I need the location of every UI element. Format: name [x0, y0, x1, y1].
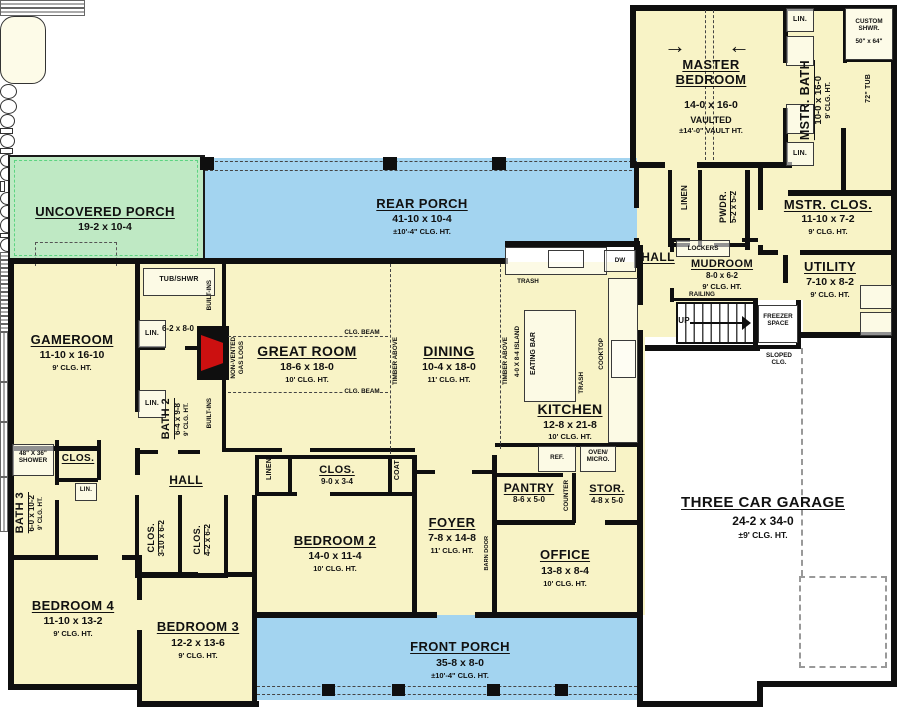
- room-clg: 9' CLG. HT.: [37, 497, 44, 530]
- timber-above-line: [500, 264, 501, 449]
- wall: [252, 495, 257, 615]
- wall: [222, 448, 282, 452]
- label-custom-shwr: CUSTOM SHWR.: [848, 18, 890, 32]
- window: [0, 422, 8, 477]
- ceiling-beam-line: [228, 336, 388, 337]
- label-line: NON-VENTED: [230, 337, 237, 379]
- label-oven-micro: OVEN/ MICRO.: [581, 449, 615, 463]
- room-dim: 6-0 x 10-2: [27, 495, 36, 531]
- room-label-bath3: BATH 3 6-0 x 10-2 9' CLG. HT.: [14, 482, 44, 544]
- bathtub-icon: [0, 16, 46, 84]
- porch-post: [383, 157, 397, 170]
- room-name: OFFICE: [540, 548, 590, 563]
- room-name: MSTR. BATH: [798, 60, 812, 140]
- wall: [698, 170, 702, 247]
- porch-post: [322, 684, 335, 696]
- wall: [800, 250, 897, 255]
- room-dim: 6-4 x 9-8: [173, 403, 182, 435]
- label-coat: COAT: [394, 460, 401, 480]
- room-clg: ±14'-0" VAULT HT.: [679, 127, 743, 135]
- room-name: UNCOVERED PORCH: [35, 205, 175, 220]
- porch-post: [392, 684, 405, 696]
- room-name: BATH 3: [14, 492, 26, 533]
- porch-post: [555, 684, 568, 696]
- room-name: DINING: [423, 344, 474, 360]
- front-porch-edge: [257, 686, 637, 687]
- wall: [330, 492, 415, 496]
- label-non-vented: NON-VENTED GAS LOGS: [230, 332, 245, 384]
- wall: [762, 681, 897, 687]
- label-72-tub: 72" TUB: [865, 74, 872, 103]
- front-porch-edge2: [257, 694, 637, 695]
- sink-icon: [0, 99, 17, 114]
- wall: [742, 238, 758, 242]
- rear-porch-edge: [205, 161, 637, 162]
- room-name: MUDROOM: [691, 258, 753, 270]
- room-name: CLOS.: [62, 453, 95, 464]
- room-dim: 35-8 x 8-0: [436, 658, 484, 670]
- room-name: MASTER BEDROOM: [651, 58, 771, 87]
- wall: [224, 495, 228, 578]
- label-barn-door: BARN DOOR: [484, 536, 490, 571]
- label-clg-beam: CLG. BEAM: [344, 329, 379, 336]
- label-trash: TRASH: [578, 372, 585, 394]
- wall: [137, 630, 142, 707]
- sink-icon: [0, 84, 17, 99]
- room-dim: 24-2 x 34-0: [732, 515, 793, 528]
- room-clg: 11' CLG. HT.: [430, 547, 473, 555]
- label-lin: LIN.: [145, 330, 159, 338]
- room-name: CLOS.: [146, 523, 156, 553]
- label-lin: LIN.: [145, 400, 159, 408]
- washer-icon: [860, 285, 892, 309]
- wall: [697, 162, 792, 168]
- label-ref: REF.: [550, 454, 564, 461]
- room-clg: 9' CLG. HT.: [810, 291, 849, 299]
- room-dim: 18-6 x 18-0: [280, 362, 334, 374]
- wall: [137, 701, 259, 707]
- room-label-master-bedroom: MASTER BEDROOM: [651, 58, 771, 87]
- room-dim: 4-2 x 6-2: [203, 524, 212, 556]
- room-name: BATH 2: [160, 398, 172, 439]
- wall: [753, 345, 801, 349]
- room-clg: 10' CLG. HT.: [285, 376, 328, 384]
- room-clg: 10' CLG. HT.: [543, 580, 586, 588]
- room-dim: 8-0 x 6-2: [706, 272, 738, 281]
- wall: [572, 473, 576, 523]
- room-name: PANTRY: [504, 482, 554, 495]
- rear-porch-edge2: [205, 170, 637, 171]
- room-dim: 3-10 x 6-2: [157, 520, 166, 556]
- room-dim: 11-10 x 13-2: [44, 616, 103, 628]
- room-name: PWDR.: [718, 191, 728, 223]
- garage-bay-dash: [801, 348, 803, 576]
- wall: [645, 345, 760, 351]
- room-dim: 10-4 x 18-0: [422, 362, 476, 374]
- room-clg: 11' CLG. HT.: [427, 376, 470, 384]
- wall: [122, 555, 142, 560]
- wall: [783, 255, 788, 283]
- room-clg: 9' CLG. HT.: [52, 364, 91, 372]
- rear-porch-fill-b: [505, 158, 637, 247]
- label-tub-shwr: TUB/SHWR: [159, 276, 198, 284]
- room-label-clos-a: CLOS. 3-10 x 6-2: [146, 508, 166, 568]
- room-clg: 9' CLG. HT.: [178, 652, 217, 660]
- dryer-icon: [860, 312, 892, 336]
- garage-door: [0, 8, 85, 16]
- wall: [222, 262, 226, 328]
- label-timber-above: TIMBER ABOVE: [392, 337, 399, 385]
- label-up: UP: [678, 317, 690, 326]
- toilet-icon: [0, 181, 5, 192]
- wall: [412, 455, 417, 615]
- wall: [668, 170, 672, 247]
- room-dim: 14-0 x 11-4: [308, 551, 361, 563]
- porch-post: [487, 684, 500, 696]
- label-trash: TRASH: [517, 278, 539, 285]
- label-clg-beam: CLG. BEAM: [344, 388, 379, 395]
- label-built-ins: BUILT-INS: [206, 398, 213, 428]
- wall: [475, 612, 640, 618]
- wall: [58, 478, 98, 482]
- room-dim: 9-0 x 3-4: [321, 478, 353, 487]
- room-clg: ±9' CLG. HT.: [738, 531, 787, 541]
- room-name: MSTR. CLOS.: [784, 198, 872, 213]
- room-dim: 4-8 x 5-0: [591, 497, 623, 506]
- wall: [891, 337, 897, 687]
- wall: [97, 440, 101, 480]
- wall: [8, 684, 142, 690]
- wall: [495, 520, 575, 525]
- room-label-clos-b: CLOS. 4-2 x 6-2: [192, 510, 212, 570]
- room-dim: 8-6 x 5-0: [513, 496, 545, 505]
- wall: [135, 495, 139, 578]
- room-name: KITCHEN: [537, 402, 602, 418]
- wall: [178, 450, 200, 454]
- wall: [605, 520, 638, 525]
- kitchen-sink-icon: [548, 250, 584, 268]
- wall: [788, 190, 897, 196]
- label-hall-master: HALL: [641, 251, 675, 264]
- bath2-tub-room-dim: 6-2 x 8-0: [162, 325, 194, 334]
- wall: [672, 298, 758, 301]
- wall: [8, 555, 98, 560]
- window: [0, 382, 8, 422]
- room-name: GREAT ROOM: [257, 344, 356, 360]
- wall: [630, 5, 636, 165]
- room-dim: 12-2 x 13-6: [171, 638, 225, 650]
- room-dim: 41-10 x 10-4: [392, 214, 452, 226]
- custom-shower: [845, 8, 893, 60]
- wall: [634, 168, 639, 208]
- label-eating-bar: EATING BAR: [530, 332, 537, 375]
- garage-door: [0, 0, 85, 8]
- wall: [492, 455, 497, 615]
- wall: [288, 455, 292, 495]
- room-label-pwdr: PWDR. 5-2 x 5-2: [718, 178, 738, 236]
- room-clg: ±10'-4" CLG. HT.: [393, 228, 451, 236]
- room-dim: 14-0 x 16-0: [684, 100, 738, 112]
- room-name: BEDROOM 3: [157, 620, 239, 635]
- room-label-bath2: BATH 2 6-4 x 9-8 9' CLG. HT.: [160, 390, 190, 448]
- stairs-arrow-line: [690, 322, 742, 324]
- wall: [310, 448, 415, 452]
- room-name: REAR PORCH: [376, 197, 467, 212]
- window: [0, 477, 8, 532]
- wall: [758, 250, 778, 255]
- porch-post: [492, 157, 506, 170]
- garage-bay-outline: [799, 576, 887, 668]
- room-clg: 9' CLG. HT.: [808, 228, 847, 236]
- room-clg: 9' CLG. HT.: [183, 403, 190, 436]
- label-timber-above: TIMBER ABOVE: [502, 337, 509, 385]
- wall: [8, 258, 508, 264]
- room-name: UTILITY: [804, 260, 856, 275]
- wall: [55, 500, 59, 558]
- label-railing: RAILING: [689, 291, 715, 298]
- room-clg: 10' CLG. HT.: [313, 565, 356, 573]
- stairs-arrow-head: [742, 316, 751, 330]
- wall: [135, 573, 228, 578]
- room-clg: 10' CLG. HT.: [548, 433, 591, 441]
- label-cooktop: COOKTOP: [598, 338, 605, 370]
- label-hall-left: HALL: [169, 474, 203, 487]
- wall: [495, 473, 563, 477]
- room-dim: 11-10 x 7-2: [801, 214, 854, 226]
- wall: [841, 128, 846, 195]
- wall: [637, 615, 643, 707]
- label-freezer-space: FREEZER SPACE: [760, 313, 796, 327]
- room-dim: 13-8 x 8-4: [541, 566, 589, 578]
- room-name: CLOS.: [319, 464, 355, 476]
- wall: [472, 470, 492, 474]
- toilet-icon: [0, 114, 15, 128]
- room-dim: 11-10 x 16-10: [40, 350, 105, 362]
- floor-plan: MASTER BEDROOM 14-0 x 16-0 VAULTED ±14'-…: [0, 0, 900, 725]
- room-dim: 12-8 x 21-8: [543, 420, 597, 432]
- wall: [178, 495, 182, 578]
- label-counter: COUNTER: [563, 480, 570, 511]
- room-name: GAMEROOM: [31, 333, 114, 348]
- room-dim: 7-10 x 8-2: [806, 277, 854, 289]
- porch-post: [200, 157, 214, 170]
- label-custom-shwr-size: 50" x 64": [856, 38, 883, 45]
- label-line: GAS LOGS: [238, 341, 245, 374]
- room-dim: 5-2 x 5-2: [729, 191, 738, 223]
- room-clg: 9' CLG. HT.: [825, 82, 832, 119]
- label-lockers: LOCKERS: [688, 245, 719, 252]
- label-linen: LINEN: [680, 185, 689, 210]
- label-lin: LIN.: [793, 150, 807, 158]
- room-note: VAULTED: [690, 115, 731, 125]
- room-name: BEDROOM 4: [32, 599, 114, 614]
- arrow-right-icon: →: [664, 33, 686, 59]
- toilet-icon: [0, 134, 15, 148]
- room-name: FRONT PORCH: [410, 640, 510, 655]
- room-name: STOR.: [589, 483, 624, 495]
- wall: [758, 168, 763, 210]
- label-sloped-clg: SLOPED CLG.: [760, 352, 798, 366]
- label-lin: LIN.: [793, 16, 807, 24]
- window: [0, 332, 8, 382]
- cooktop: [611, 340, 636, 378]
- label-shower-48: 48" X 36" SHOWER: [13, 450, 53, 464]
- label-dw: DW: [615, 257, 626, 264]
- label-built-ins: BUILT-INS: [206, 280, 213, 310]
- label-island: 4-0 X 8-4 ISLAND: [514, 326, 521, 377]
- label-lin: LIN.: [80, 487, 92, 494]
- label-linen: LINEN: [266, 458, 273, 480]
- wall: [388, 455, 392, 495]
- timber-above-line: [390, 264, 391, 454]
- room-name: BEDROOM 2: [294, 534, 376, 549]
- room-name: THREE CAR GARAGE: [681, 495, 845, 512]
- wall: [255, 612, 437, 618]
- wall: [640, 701, 763, 707]
- wall: [255, 455, 259, 495]
- room-dim: 19-2 x 10-4: [78, 222, 132, 234]
- wall: [140, 450, 158, 454]
- room-name: FOYER: [429, 516, 476, 531]
- room-name: CLOS.: [192, 525, 202, 555]
- arrow-left-icon: ←: [728, 33, 750, 59]
- room-dim: 10-0 x 16-0: [813, 76, 824, 125]
- wall: [415, 470, 435, 474]
- room-label-mstr-bath: MSTR. BATH 10-0 x 16-0 9' CLG. HT.: [798, 40, 832, 160]
- room-dim: 7-8 x 14-8: [428, 533, 476, 545]
- room-clg: ±10'-4" CLG. HT.: [431, 672, 489, 680]
- room-clg: 9' CLG. HT.: [53, 630, 92, 638]
- wall: [222, 378, 226, 450]
